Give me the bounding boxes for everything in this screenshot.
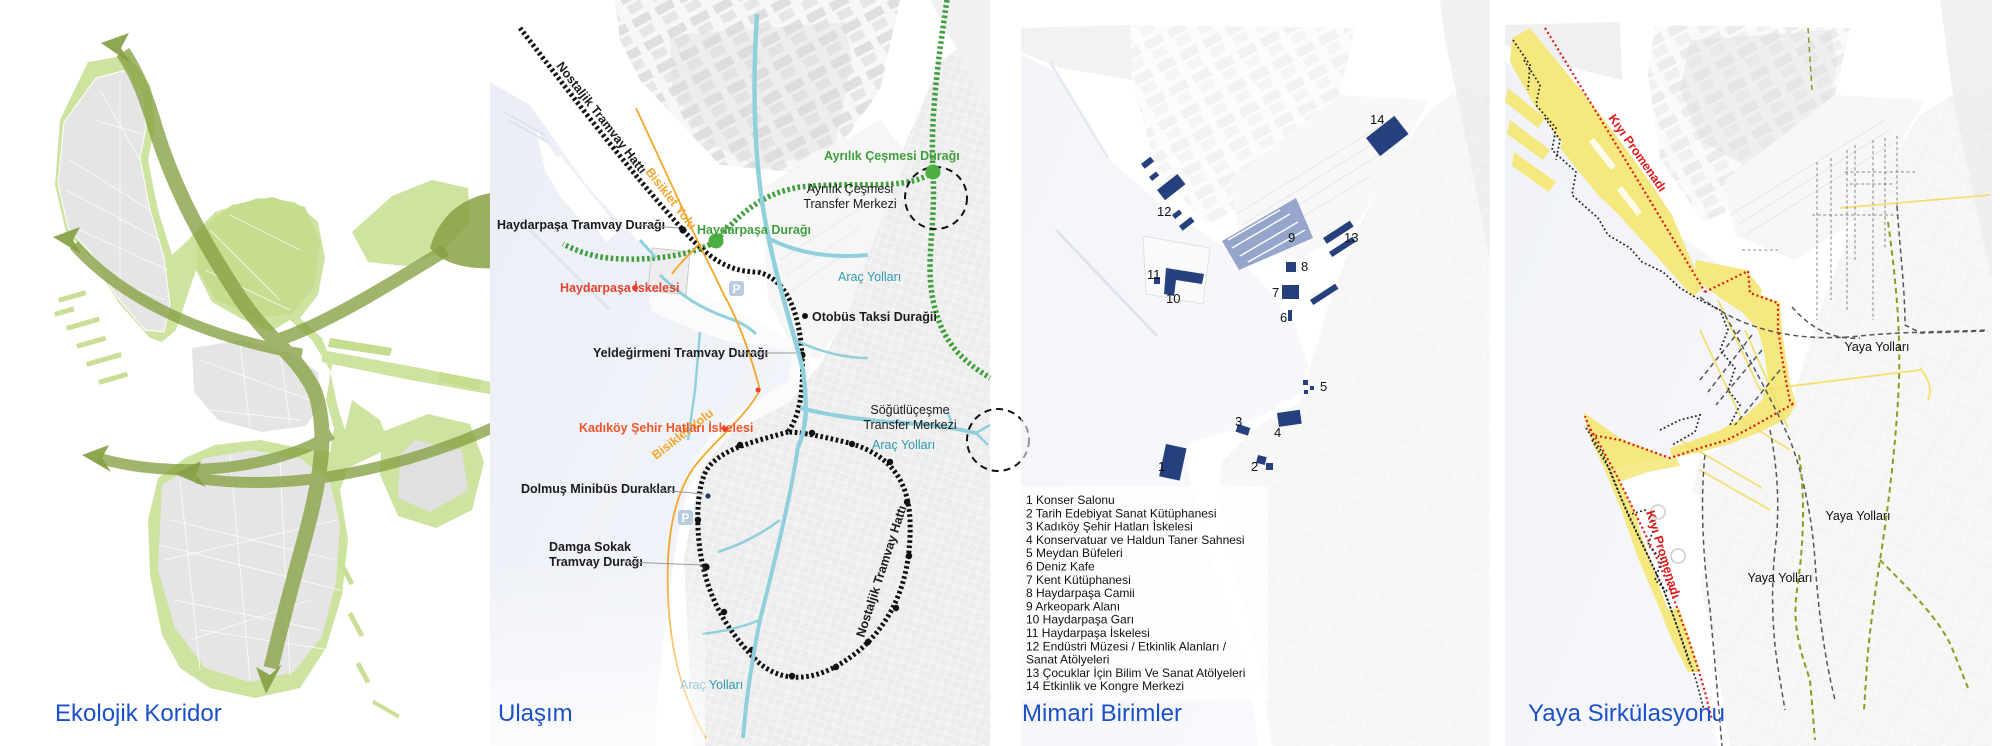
- svg-text:1 Konser Salonu: 1 Konser Salonu: [1026, 493, 1115, 507]
- svg-text:Yaya Sirkülasyonu: Yaya Sirkülasyonu: [1528, 700, 1725, 727]
- svg-text:7 Kent Kütüphanesi: 7 Kent Kütüphanesi: [1026, 573, 1131, 587]
- svg-text:Mimari Birimler: Mimari Birimler: [1022, 700, 1182, 727]
- svg-text:Transfer Merkezi: Transfer Merkezi: [863, 418, 956, 432]
- svg-text:5 Meydan Büfeleri: 5 Meydan Büfeleri: [1026, 546, 1123, 560]
- svg-text:1: 1: [1158, 459, 1165, 474]
- svg-text:Söğütlüçeşme: Söğütlüçeşme: [870, 403, 949, 417]
- svg-text:Araç Yolları: Araç Yolları: [838, 270, 901, 284]
- svg-text:P: P: [732, 282, 740, 296]
- svg-text:Sanat Atölyeleri: Sanat Atölyeleri: [1026, 653, 1109, 667]
- svg-text:11 Haydarpaşa İskelesi: 11 Haydarpaşa İskelesi: [1026, 626, 1150, 640]
- svg-text:9: 9: [1288, 230, 1295, 245]
- svg-text:8: 8: [1301, 259, 1308, 274]
- svg-text:Ayrılık Çeşmesi Durağı: Ayrılık Çeşmesi Durağı: [824, 149, 960, 163]
- svg-text:8 Haydarpaşa Camii: 8 Haydarpaşa Camii: [1026, 586, 1135, 600]
- svg-text:Araç Yolları: Araç Yolları: [872, 438, 935, 452]
- svg-text:12 Endüstri Müzesi / Etkinlik: 12 Endüstri Müzesi / Etkinlik Alanları /: [1026, 639, 1227, 653]
- svg-text:13 Çocuklar İçin Bilim Ve Sana: 13 Çocuklar İçin Bilim Ve Sanat Atölyele…: [1026, 666, 1245, 680]
- svg-text:Yaya Yolları: Yaya Yolları: [1825, 509, 1890, 523]
- svg-text:3 Kadıköy Şehir Hatları İskele: 3 Kadıköy Şehir Hatları İskelesi: [1026, 520, 1193, 534]
- svg-text:P: P: [681, 511, 689, 525]
- svg-text:4 Konservatuar ve Haldun Taner: 4 Konservatuar ve Haldun Taner Sahnesi: [1026, 533, 1245, 547]
- svg-text:4: 4: [1274, 425, 1281, 440]
- svg-text:5: 5: [1320, 379, 1327, 394]
- svg-text:14: 14: [1370, 112, 1384, 127]
- svg-text:Haydarpaşa İskelesi: Haydarpaşa İskelesi: [560, 280, 680, 295]
- svg-text:Yaya Yolları: Yaya Yolları: [1844, 340, 1909, 354]
- svg-text:11: 11: [1147, 267, 1161, 282]
- svg-text:Otobüs Taksi Durağii: Otobüs Taksi Durağii: [812, 310, 937, 324]
- svg-text:Ekolojik Koridor: Ekolojik Koridor: [55, 700, 222, 727]
- svg-text:2: 2: [1251, 459, 1258, 474]
- svg-text:Damga Sokak: Damga Sokak: [549, 540, 631, 554]
- svg-text:12: 12: [1157, 204, 1171, 219]
- svg-text:6 Deniz Kafe: 6 Deniz Kafe: [1026, 560, 1095, 574]
- svg-text:3: 3: [1235, 414, 1242, 429]
- svg-text:Haydarpaşa Tramvay Durağı: Haydarpaşa Tramvay Durağı: [497, 218, 665, 232]
- svg-text:Yaya Yolları: Yaya Yolları: [1747, 571, 1812, 585]
- svg-text:13: 13: [1344, 230, 1358, 245]
- svg-text:10 Haydarpaşa Garı: 10 Haydarpaşa Garı: [1026, 613, 1134, 627]
- svg-text:10: 10: [1166, 291, 1180, 306]
- svg-text:6: 6: [1280, 310, 1287, 325]
- svg-text:2 Tarih Edebiyat Sanat Kütüpha: 2 Tarih Edebiyat Sanat Kütüphanesi: [1026, 506, 1217, 520]
- svg-text:Haydarpaşa Durağı: Haydarpaşa Durağı: [697, 223, 811, 237]
- svg-text:Transfer Merkezi: Transfer Merkezi: [803, 197, 896, 211]
- svg-text:9 Arkeopark Alanı: 9 Arkeopark Alanı: [1026, 599, 1120, 613]
- svg-text:7: 7: [1272, 285, 1279, 300]
- svg-text:14 Etkinlik ve Kongre Merkezi: 14 Etkinlik ve Kongre Merkezi: [1026, 679, 1184, 693]
- svg-text:Ayrılık Çeşmesi: Ayrılık Çeşmesi: [807, 182, 894, 196]
- svg-text:Ulaşım: Ulaşım: [498, 700, 573, 727]
- svg-text:Kadıköy Şehir Hatları İskelesi: Kadıköy Şehir Hatları İskelesi: [579, 420, 753, 435]
